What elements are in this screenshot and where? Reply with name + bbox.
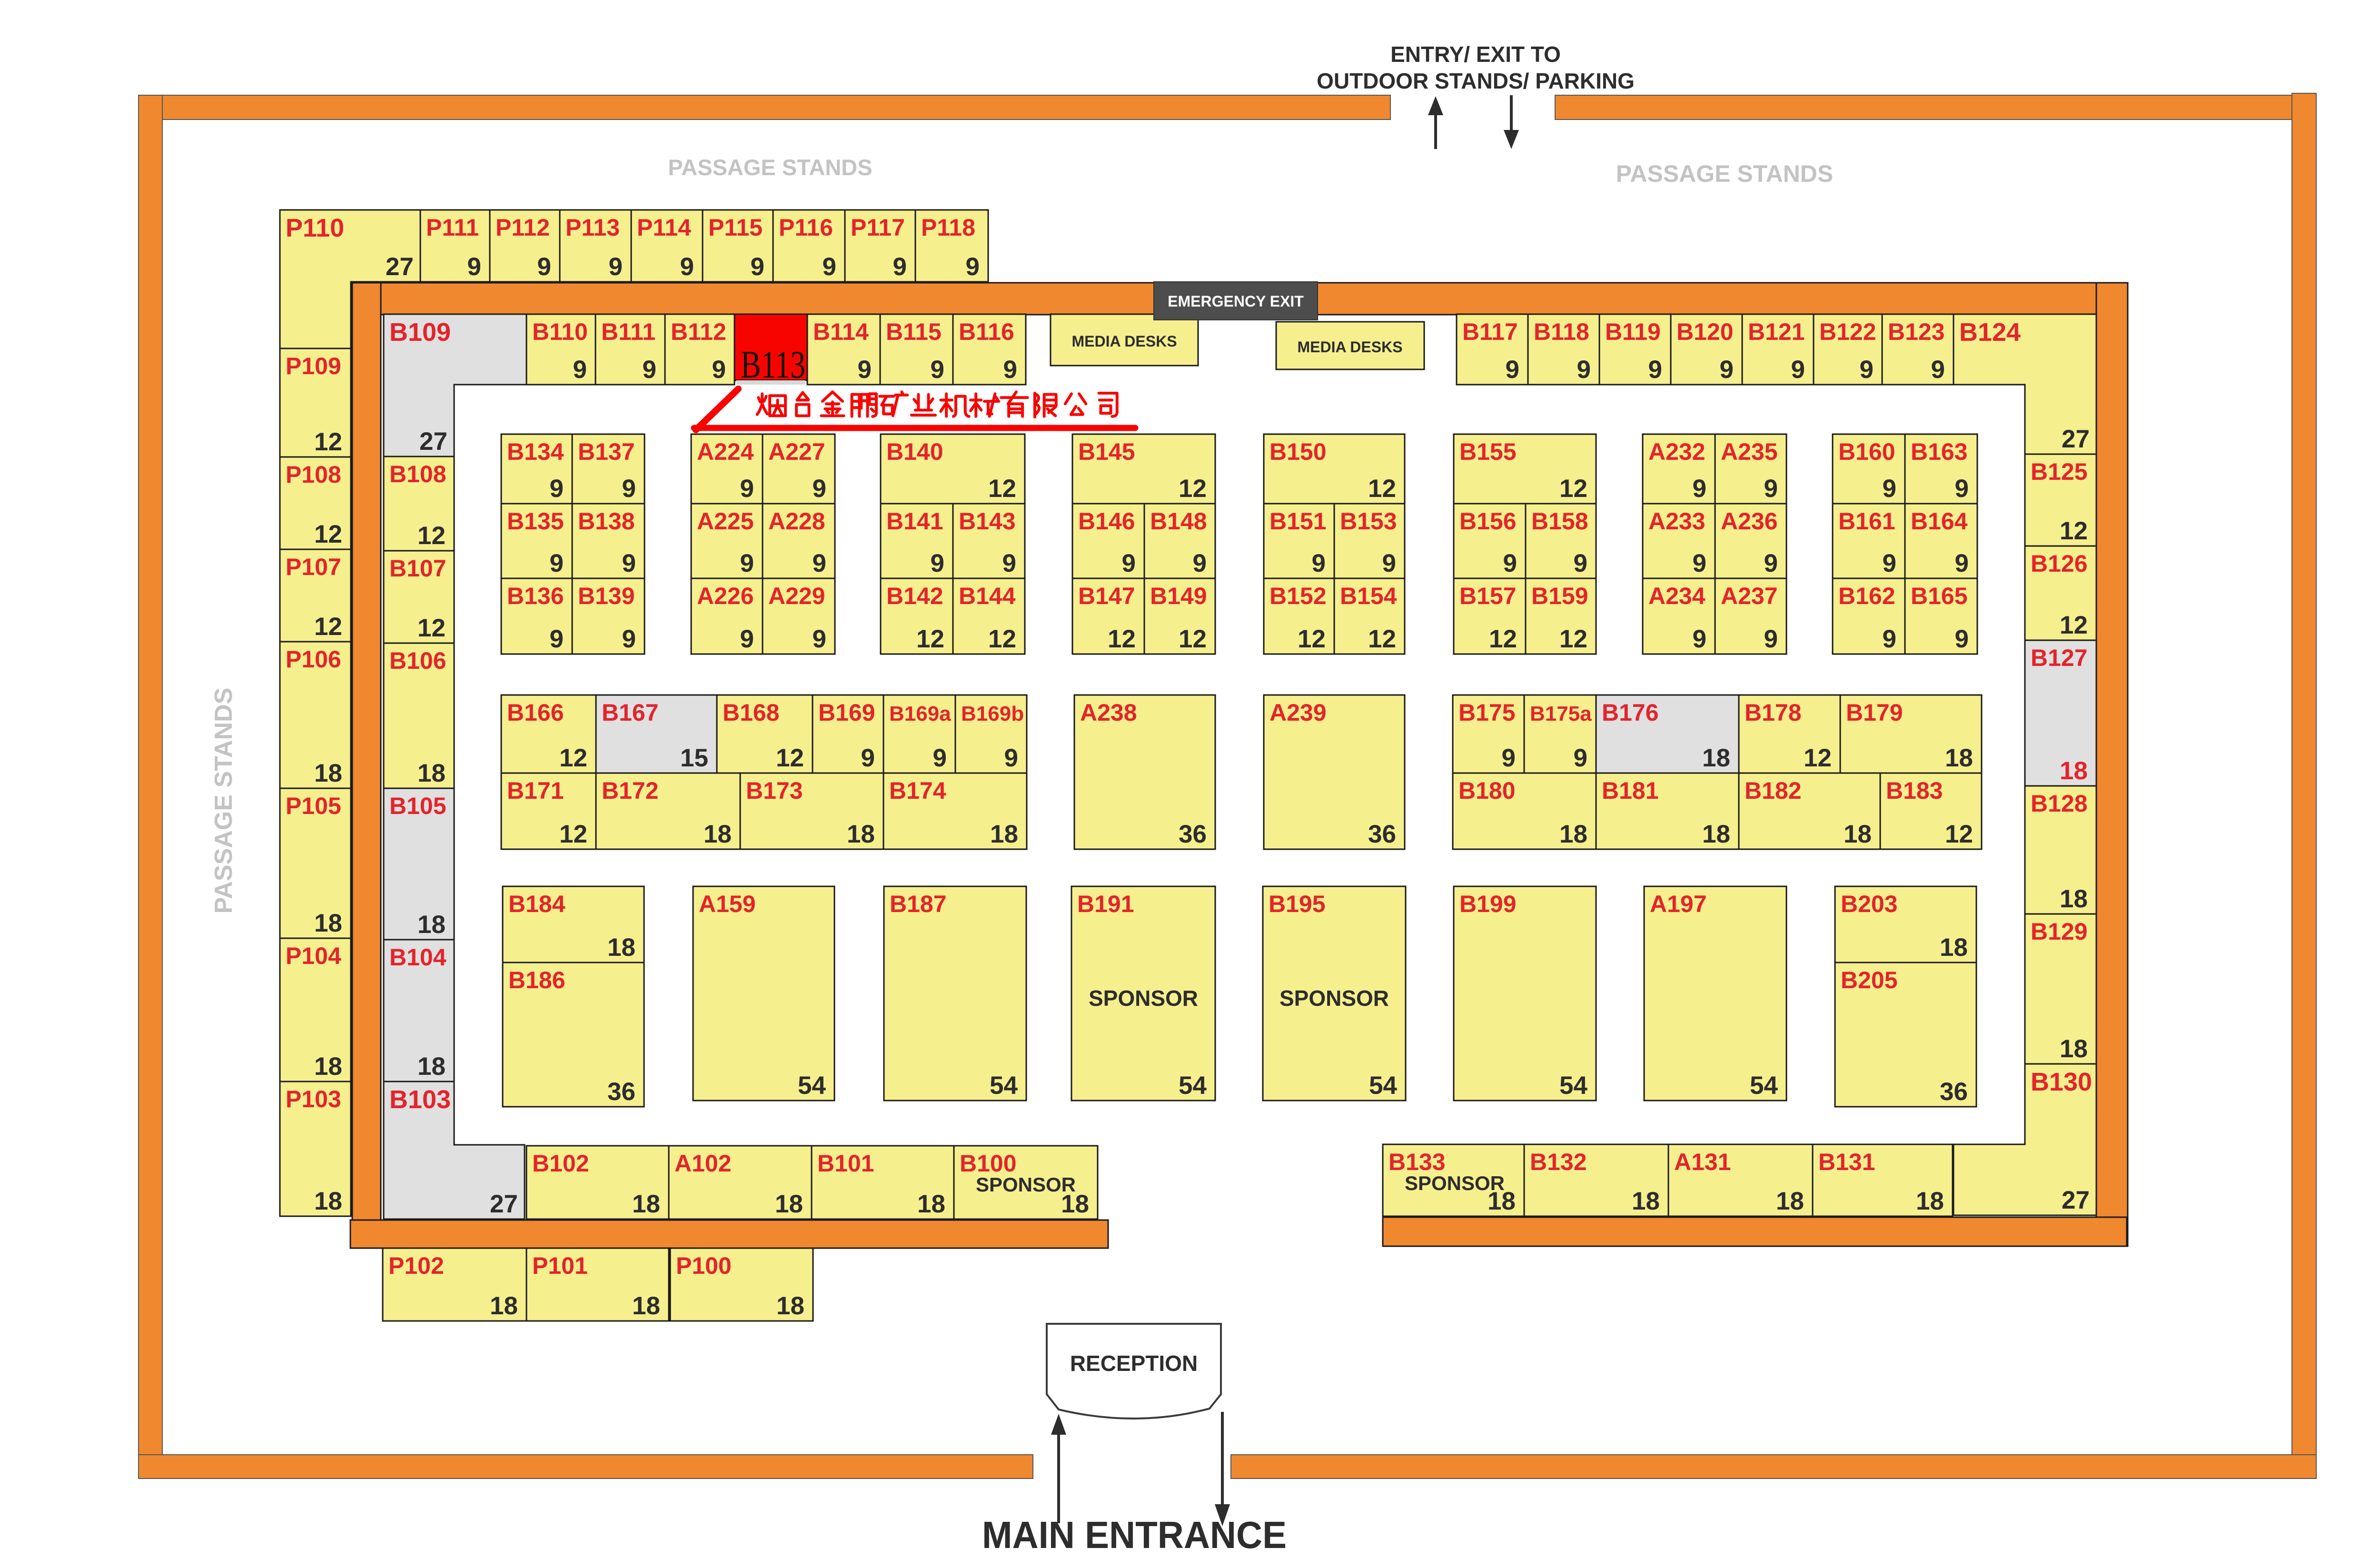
svg-text:9: 9 (931, 356, 944, 384)
svg-text:B163: B163 (1911, 438, 1968, 465)
svg-text:P101: P101 (532, 1252, 588, 1279)
svg-text:B182: B182 (1745, 777, 1802, 804)
svg-text:9: 9 (1955, 625, 1969, 653)
svg-text:B149: B149 (1150, 583, 1207, 609)
svg-text:9: 9 (1648, 356, 1662, 384)
svg-text:18: 18 (917, 1190, 945, 1218)
svg-text:12: 12 (559, 820, 587, 848)
svg-text:A228: A228 (768, 508, 825, 535)
svg-text:54: 54 (798, 1072, 826, 1100)
svg-text:18: 18 (775, 1190, 803, 1218)
svg-text:SPONSOR: SPONSOR (976, 1173, 1076, 1196)
svg-text:B173: B173 (746, 777, 803, 804)
svg-text:A159: A159 (699, 891, 756, 917)
svg-text:B143: B143 (959, 508, 1016, 535)
svg-text:B169: B169 (818, 699, 875, 726)
svg-text:P116: P116 (779, 214, 833, 241)
svg-text:B150: B150 (1269, 438, 1327, 465)
svg-text:9: 9 (1004, 744, 1018, 772)
svg-text:18: 18 (417, 759, 446, 787)
svg-text:P103: P103 (286, 1086, 341, 1112)
svg-text:B102: B102 (532, 1150, 589, 1177)
svg-text:9: 9 (1574, 744, 1587, 772)
svg-text:B132: B132 (1530, 1149, 1587, 1175)
svg-text:B172: B172 (602, 777, 659, 804)
svg-text:A232: A232 (1648, 438, 1706, 465)
svg-text:9: 9 (1122, 549, 1136, 577)
svg-text:B151: B151 (1269, 508, 1327, 535)
svg-text:12: 12 (417, 614, 446, 642)
svg-text:12: 12 (559, 744, 587, 772)
svg-text:18: 18 (314, 1052, 342, 1081)
svg-text:B133: B133 (1388, 1149, 1446, 1175)
svg-text:27: 27 (2062, 425, 2090, 453)
svg-text:12: 12 (2060, 611, 2088, 639)
svg-text:SPONSOR: SPONSOR (1089, 986, 1198, 1011)
svg-text:P108: P108 (286, 461, 341, 488)
svg-text:54: 54 (1559, 1072, 1587, 1100)
svg-text:9: 9 (1955, 549, 1969, 577)
svg-text:18: 18 (1632, 1187, 1660, 1215)
svg-text:B124: B124 (1959, 318, 2021, 347)
svg-text:P115: P115 (708, 214, 763, 241)
svg-text:18: 18 (776, 1292, 804, 1320)
svg-text:9: 9 (813, 625, 826, 653)
svg-text:36: 36 (607, 1078, 635, 1106)
svg-text:B183: B183 (1886, 777, 1943, 804)
svg-text:18: 18 (417, 1052, 446, 1081)
svg-text:B111: B111 (601, 318, 655, 345)
svg-text:9: 9 (1931, 356, 1945, 384)
svg-text:12: 12 (1368, 475, 1396, 503)
svg-text:18: 18 (314, 1187, 342, 1215)
svg-text:9: 9 (823, 253, 836, 281)
svg-text:B175a: B175a (1530, 702, 1592, 725)
svg-text:A225: A225 (697, 508, 754, 535)
svg-text:PASSAGE STANDS: PASSAGE STANDS (210, 688, 238, 914)
svg-text:B195: B195 (1269, 891, 1326, 917)
svg-text:36: 36 (1940, 1078, 1968, 1106)
svg-text:B112: B112 (671, 318, 726, 345)
svg-text:RECEPTION: RECEPTION (1070, 1351, 1198, 1376)
svg-text:B159: B159 (1531, 583, 1588, 609)
svg-text:12: 12 (1489, 625, 1517, 653)
svg-text:9: 9 (813, 549, 826, 577)
svg-text:12: 12 (314, 613, 342, 641)
svg-text:27: 27 (419, 427, 447, 456)
svg-text:B126: B126 (2031, 550, 2088, 577)
svg-text:A102: A102 (674, 1150, 732, 1177)
svg-text:18: 18 (847, 820, 875, 848)
svg-text:9: 9 (1860, 356, 1874, 384)
svg-text:A197: A197 (1650, 891, 1707, 917)
svg-text:9: 9 (933, 744, 947, 772)
svg-text:P107: P107 (286, 554, 341, 580)
svg-text:18: 18 (417, 911, 446, 939)
svg-text:B164: B164 (1911, 508, 1968, 535)
svg-text:9: 9 (1002, 549, 1016, 577)
svg-text:12: 12 (1559, 475, 1587, 503)
svg-text:B160: B160 (1838, 438, 1895, 465)
svg-text:12: 12 (916, 625, 944, 653)
svg-text:12: 12 (2060, 517, 2088, 545)
svg-text:B174: B174 (889, 777, 946, 804)
svg-text:B169b: B169b (961, 702, 1024, 725)
svg-text:B128: B128 (2031, 790, 2088, 817)
svg-text:B117: B117 (1462, 318, 1518, 345)
svg-text:B171: B171 (507, 777, 564, 804)
svg-text:B148: B148 (1150, 508, 1207, 535)
svg-text:B199: B199 (1459, 891, 1517, 917)
svg-text:18: 18 (1702, 744, 1730, 772)
svg-text:12: 12 (417, 522, 446, 550)
svg-text:ENTRY/ EXIT TO: ENTRY/ EXIT TO (1390, 42, 1561, 67)
svg-text:A237: A237 (1721, 583, 1778, 609)
svg-text:18: 18 (1916, 1187, 1944, 1215)
svg-text:MEDIA DESKS: MEDIA DESKS (1297, 338, 1402, 356)
svg-text:OUTDOOR STANDS/ PARKING: OUTDOOR STANDS/ PARKING (1317, 69, 1635, 93)
svg-text:SPONSOR: SPONSOR (1279, 986, 1389, 1011)
svg-text:P113: P113 (565, 214, 620, 241)
svg-text:B175: B175 (1458, 699, 1516, 726)
svg-text:18: 18 (490, 1292, 518, 1320)
svg-text:9: 9 (931, 549, 944, 577)
svg-text:B134: B134 (507, 438, 564, 465)
svg-text:54: 54 (1750, 1072, 1778, 1100)
svg-text:18: 18 (1776, 1187, 1804, 1215)
svg-text:12: 12 (314, 428, 342, 456)
svg-text:A234: A234 (1648, 583, 1706, 609)
svg-text:54: 54 (1369, 1072, 1397, 1100)
svg-text:18: 18 (314, 909, 342, 937)
svg-text:9: 9 (1693, 475, 1706, 503)
svg-text:B100: B100 (960, 1150, 1017, 1177)
svg-text:B162: B162 (1838, 583, 1895, 609)
svg-text:9: 9 (1693, 549, 1706, 577)
svg-text:EMERGENCY EXIT: EMERGENCY EXIT (1168, 293, 1304, 310)
svg-text:12: 12 (1179, 475, 1207, 503)
svg-text:9: 9 (1003, 356, 1017, 384)
svg-text:9: 9 (1764, 625, 1778, 653)
svg-text:9: 9 (966, 253, 980, 281)
svg-text:9: 9 (550, 625, 564, 653)
svg-text:54: 54 (990, 1072, 1018, 1100)
svg-text:B141: B141 (886, 508, 943, 535)
svg-text:B109: B109 (389, 318, 451, 347)
svg-text:9: 9 (467, 253, 481, 281)
svg-text:B103: B103 (389, 1085, 451, 1114)
svg-text:PASSAGE STANDS: PASSAGE STANDS (668, 155, 872, 180)
svg-text:B127: B127 (2031, 645, 2088, 671)
svg-text:B142: B142 (886, 583, 943, 609)
svg-text:B119: B119 (1605, 318, 1661, 345)
svg-text:18: 18 (314, 759, 342, 787)
svg-text:36: 36 (1368, 820, 1396, 848)
svg-text:12: 12 (776, 744, 804, 772)
svg-text:B161: B161 (1838, 508, 1895, 535)
svg-text:P106: P106 (286, 646, 341, 673)
svg-text:9: 9 (1883, 625, 1896, 653)
svg-text:12: 12 (1179, 625, 1207, 653)
svg-text:B146: B146 (1078, 508, 1135, 535)
svg-text:B186: B186 (508, 967, 565, 993)
svg-text:P109: P109 (286, 353, 341, 379)
svg-text:12: 12 (1368, 625, 1396, 653)
svg-text:9: 9 (609, 253, 623, 281)
svg-text:B108: B108 (389, 461, 446, 487)
svg-text:P118: P118 (921, 214, 975, 241)
svg-text:9: 9 (1502, 744, 1516, 772)
svg-text:A238: A238 (1080, 699, 1137, 726)
svg-text:27: 27 (386, 253, 414, 281)
svg-text:9: 9 (537, 253, 551, 281)
svg-text:9: 9 (1764, 475, 1778, 503)
svg-text:B104: B104 (389, 944, 446, 971)
svg-text:B121: B121 (1748, 318, 1805, 345)
svg-text:18: 18 (607, 933, 635, 962)
svg-text:B105: B105 (389, 793, 446, 819)
svg-text:A229: A229 (768, 583, 825, 609)
svg-text:B181: B181 (1602, 777, 1659, 804)
svg-text:9: 9 (1312, 549, 1326, 577)
svg-text:B166: B166 (507, 699, 564, 726)
svg-text:B136: B136 (507, 583, 564, 609)
svg-text:B131: B131 (1818, 1149, 1875, 1175)
svg-text:B110: B110 (532, 318, 588, 345)
svg-text:9: 9 (893, 253, 907, 281)
svg-text:MEDIA DESKS: MEDIA DESKS (1071, 333, 1177, 350)
svg-text:18: 18 (632, 1190, 660, 1218)
svg-text:18: 18 (1844, 820, 1872, 848)
svg-text:B179: B179 (1846, 699, 1903, 726)
svg-text:B187: B187 (890, 891, 947, 917)
svg-text:9: 9 (622, 549, 636, 577)
svg-text:P100: P100 (676, 1252, 732, 1279)
svg-text:9: 9 (740, 549, 754, 577)
svg-text:P110: P110 (286, 214, 344, 242)
svg-text:18: 18 (2060, 1035, 2088, 1063)
svg-text:B158: B158 (1531, 508, 1588, 535)
svg-text:B180: B180 (1458, 777, 1516, 804)
svg-text:B153: B153 (1340, 508, 1397, 535)
svg-text:A224: A224 (697, 438, 754, 465)
svg-text:9: 9 (1503, 549, 1517, 577)
svg-text:B118: B118 (1534, 318, 1589, 345)
svg-text:9: 9 (751, 253, 764, 281)
svg-text:18: 18 (1559, 820, 1587, 848)
svg-text:9: 9 (858, 356, 872, 384)
svg-text:18: 18 (990, 820, 1018, 848)
svg-text:9: 9 (1693, 625, 1706, 653)
svg-text:12: 12 (1945, 820, 1973, 848)
svg-text:9: 9 (740, 475, 754, 503)
svg-text:B154: B154 (1340, 583, 1397, 609)
svg-text:12: 12 (988, 475, 1016, 503)
svg-text:9: 9 (1506, 356, 1519, 384)
svg-text:9: 9 (550, 475, 564, 503)
svg-text:9: 9 (622, 475, 636, 503)
svg-text:9: 9 (1577, 356, 1591, 384)
svg-text:12: 12 (988, 625, 1016, 653)
svg-text:9: 9 (550, 549, 564, 577)
svg-text:A233: A233 (1648, 508, 1706, 535)
svg-text:P117: P117 (851, 214, 905, 241)
svg-text:54: 54 (1179, 1072, 1207, 1100)
svg-text:PASSAGE STANDS: PASSAGE STANDS (1616, 160, 1834, 187)
svg-text:A235: A235 (1721, 438, 1778, 465)
svg-text:B137: B137 (578, 438, 635, 465)
svg-text:B205: B205 (1841, 967, 1898, 993)
svg-text:B129: B129 (2031, 918, 2088, 945)
svg-text:B114: B114 (813, 318, 869, 345)
svg-text:B184: B184 (508, 891, 565, 917)
svg-text:9: 9 (1883, 475, 1896, 503)
svg-text:27: 27 (490, 1190, 518, 1218)
svg-text:18: 18 (2060, 885, 2088, 913)
svg-text:9: 9 (1720, 356, 1734, 384)
svg-text:B156: B156 (1459, 508, 1517, 535)
svg-text:12: 12 (1108, 625, 1136, 653)
svg-text:9: 9 (1193, 549, 1207, 577)
svg-text:B115: B115 (886, 318, 942, 345)
svg-text:B135: B135 (507, 508, 564, 535)
svg-text:B144: B144 (959, 583, 1016, 609)
svg-text:9: 9 (740, 625, 754, 653)
svg-text:18: 18 (632, 1292, 660, 1320)
svg-text:18: 18 (1940, 933, 1968, 962)
svg-text:15: 15 (680, 744, 708, 772)
svg-text:9: 9 (622, 625, 636, 653)
svg-text:B106: B106 (389, 647, 446, 674)
svg-text:9: 9 (680, 253, 694, 281)
svg-text:B125: B125 (2031, 458, 2088, 485)
svg-text:SPONSOR: SPONSOR (1405, 1172, 1505, 1194)
svg-text:9: 9 (1382, 549, 1396, 577)
svg-text:A226: A226 (697, 583, 754, 609)
svg-text:9: 9 (573, 356, 587, 384)
svg-text:9: 9 (1791, 356, 1805, 384)
svg-text:36: 36 (1179, 820, 1207, 848)
svg-text:B147: B147 (1078, 583, 1135, 609)
svg-text:B120: B120 (1676, 318, 1734, 345)
svg-text:B191: B191 (1077, 891, 1134, 917)
svg-text:B140: B140 (886, 438, 943, 465)
svg-text:P102: P102 (388, 1252, 444, 1279)
svg-text:B155: B155 (1459, 438, 1517, 465)
svg-text:9: 9 (1955, 475, 1969, 503)
svg-text:9: 9 (1883, 549, 1896, 577)
svg-text:B203: B203 (1841, 891, 1898, 917)
svg-text:B113: B113 (741, 343, 805, 386)
svg-text:B176: B176 (1602, 699, 1659, 726)
svg-text:B122: B122 (1819, 318, 1876, 345)
svg-text:B139: B139 (578, 583, 635, 609)
svg-text:A239: A239 (1269, 699, 1327, 726)
svg-text:B101: B101 (817, 1150, 874, 1177)
svg-text:B130: B130 (2031, 1068, 2092, 1096)
svg-text:B157: B157 (1459, 583, 1517, 609)
svg-text:18: 18 (1945, 744, 1973, 772)
svg-text:18: 18 (1702, 820, 1730, 848)
svg-text:A227: A227 (768, 438, 825, 465)
svg-text:12: 12 (1559, 625, 1587, 653)
svg-text:18: 18 (704, 820, 732, 848)
svg-text:A131: A131 (1674, 1149, 1731, 1175)
svg-text:27: 27 (2062, 1186, 2090, 1214)
svg-text:MAIN ENTRANCE: MAIN ENTRANCE (982, 1514, 1287, 1556)
svg-text:B145: B145 (1078, 438, 1135, 465)
svg-text:9: 9 (1574, 549, 1587, 577)
svg-text:B168: B168 (723, 699, 780, 726)
svg-text:B169a: B169a (889, 702, 951, 725)
svg-text:9: 9 (813, 475, 826, 503)
svg-text:A236: A236 (1721, 508, 1778, 535)
svg-text:B178: B178 (1745, 699, 1802, 726)
svg-text:P105: P105 (286, 793, 341, 819)
svg-text:P111: P111 (426, 214, 479, 241)
svg-text:B123: B123 (1888, 318, 1945, 345)
svg-text:18: 18 (2060, 757, 2088, 785)
svg-text:B165: B165 (1911, 583, 1968, 609)
svg-text:P114: P114 (637, 214, 691, 241)
svg-text:P104: P104 (286, 943, 341, 969)
svg-text:B167: B167 (602, 699, 659, 726)
svg-text:12: 12 (1298, 625, 1326, 653)
svg-text:P112: P112 (496, 214, 550, 241)
svg-text:9: 9 (861, 744, 875, 772)
svg-text:B116: B116 (959, 318, 1014, 345)
svg-text:9: 9 (1764, 549, 1778, 577)
svg-text:9: 9 (643, 356, 656, 384)
svg-text:9: 9 (712, 356, 726, 384)
svg-text:B152: B152 (1269, 583, 1327, 609)
svg-text:B138: B138 (578, 508, 635, 535)
svg-text:B107: B107 (389, 555, 446, 582)
svg-text:12: 12 (314, 520, 342, 548)
svg-text:12: 12 (1804, 744, 1832, 772)
